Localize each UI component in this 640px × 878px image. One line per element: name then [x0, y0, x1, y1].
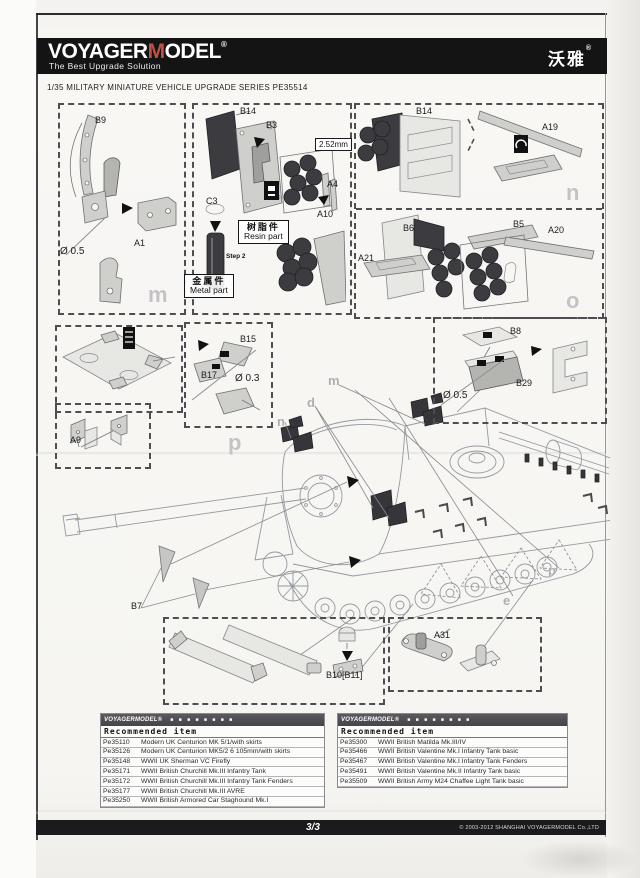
resin-part-en: Resin part — [244, 232, 283, 242]
item-desc: WWII British Armored Car Staghound Mk.I — [139, 796, 324, 806]
assembly-arrow-icon — [531, 346, 542, 356]
tank-ref-letter-m: m — [328, 374, 340, 387]
part-label-b6: B6 — [403, 223, 414, 233]
part-label-a9: A9 — [70, 435, 81, 445]
brand-chinese-text: 沃雅 — [548, 50, 586, 69]
diameter-label: Ø 0.5 — [443, 390, 467, 401]
item-code: Pe35110 — [101, 738, 139, 747]
part-label-c3: C3 — [206, 196, 218, 206]
box-plate-parts — [57, 327, 177, 407]
table-row: Pe35466WWII British Valentine Mk.I Infan… — [338, 747, 567, 757]
item-desc: Modern UK Centurion MK 5/1/with skirts — [139, 738, 324, 747]
registered-mark: ® — [221, 40, 226, 49]
part-label-a1: A1 — [134, 238, 145, 248]
spring-tool-icon — [123, 327, 135, 349]
paper-crease-bottom — [36, 810, 606, 814]
logo-odel: ODEL — [165, 40, 221, 63]
section-letter-n: n — [566, 182, 579, 204]
series-title: 1/35 MILITARY MINIATURE VEHICLE UPGRADE … — [47, 83, 308, 92]
table-brand-cn-blocks: ■ ■ ■ ■ ■ ■ ■ ■ — [170, 717, 234, 723]
item-desc: Modern UK Centurion MK5/2 6 105mm/with s… — [139, 747, 324, 757]
item-desc: WWII British Churchill Mk.III AVRE — [139, 787, 324, 797]
diagram-box-plate — [55, 325, 183, 413]
copyright-text: © 2003-2012 SHANGHAI VOYAGERMODEL Co.,LT… — [459, 825, 599, 831]
item-code: Pe35491 — [338, 767, 376, 777]
table-brand-strip: VOYAGERMODEL® ■ ■ ■ ■ ■ ■ ■ ■ — [101, 714, 324, 726]
item-code: Pe35171 — [101, 767, 139, 777]
logo-voyager: VOYAGER — [48, 40, 148, 63]
item-desc: WWII British Churchill Mk.III Infantry T… — [139, 767, 324, 777]
dimension-label: 2.52mm — [315, 138, 352, 151]
diameter-label: Ø 0.3 — [235, 373, 259, 384]
item-code: Pe35126 — [101, 747, 139, 757]
section-letter-p: p — [228, 432, 241, 454]
item-code: Pe35250 — [101, 796, 139, 806]
section-letter-o: o — [566, 290, 579, 312]
metal-part-label: 金属件 Metal part — [184, 274, 234, 298]
diagram-box-n-o — [354, 103, 604, 319]
box-m-parts — [60, 105, 180, 309]
assembly-arrow-icon — [347, 476, 359, 488]
table-row: Pe35509WWII British Army M24 Chaffee Lig… — [338, 777, 567, 787]
part-label-a4: A4 — [327, 179, 338, 189]
table-row: Pe35126Modern UK Centurion MK5/2 6 105mm… — [101, 747, 324, 757]
page-edge-top — [36, 13, 607, 15]
item-desc: WWII British Valentine Mk.I Infantry Tan… — [376, 757, 567, 767]
diagram-box-b15 — [184, 322, 273, 428]
tank-ref-letter-e: e — [503, 594, 510, 607]
part-label-b14: B14 — [240, 106, 256, 116]
table-title: Recommended item — [101, 726, 324, 738]
part-label-b14-right: B14 — [416, 106, 432, 116]
item-code: Pe35466 — [338, 747, 376, 757]
part-label-b8: B8 — [510, 326, 521, 336]
step-label: Step 2 — [226, 253, 246, 260]
part-label-b3: B3 — [266, 120, 277, 130]
tank-ref-letter-n: n — [277, 415, 285, 428]
table-brand-cn-blocks: ■ ■ ■ ■ ■ ■ ■ ■ — [407, 717, 471, 723]
part-label-b29: B29 — [516, 378, 532, 388]
footer-bar: 3/3 © 2003-2012 SHANGHAI VOYAGERMODEL Co… — [36, 820, 606, 835]
table-row: Pe35300WWII British Matilda Mk.III/IV — [338, 738, 567, 747]
page-edge-left — [36, 13, 38, 840]
table-row: Pe35172WWII British Churchill Mk.III Inf… — [101, 777, 324, 787]
part-label-a10: A10 — [317, 209, 333, 219]
items-table: Pe35300WWII British Matilda Mk.III/IVPe3… — [338, 738, 567, 787]
part-label-b10-b11: B10[B11] — [326, 670, 362, 680]
part-label-b7: B7 — [131, 601, 142, 611]
assembly-arrow-icon — [342, 651, 353, 661]
resin-part-label: 树脂件 Resin part — [238, 220, 289, 244]
page-number: 3/3 — [306, 822, 320, 833]
item-desc: WWII British Valentine Mk.I Infantry Tan… — [376, 747, 567, 757]
part-label-b5: B5 — [513, 219, 524, 229]
assembly-arrow-icon — [122, 203, 133, 214]
tank-gun — [63, 475, 342, 560]
part-label-a21: A21 — [358, 253, 374, 263]
diagram-box-a31 — [388, 617, 542, 692]
tank-ref-letter-p: p — [548, 564, 556, 577]
item-desc: WWII British Churchill Mk.III Infantry T… — [139, 777, 324, 787]
diagram-box-beams — [163, 617, 385, 705]
table-row: Pe35250WWII British Armored Car Staghoun… — [101, 796, 324, 806]
assembly-arrow-icon — [210, 221, 221, 232]
item-code: Pe35300 — [338, 738, 376, 747]
brand-tagline: The Best Upgrade Solution — [49, 61, 161, 71]
assembly-arrow-icon — [349, 556, 361, 568]
header-bar: VOYAGERMODEL® The Best Upgrade Solution … — [37, 38, 607, 74]
table-row: Pe35110Modern UK Centurion MK 5/1/with s… — [101, 738, 324, 747]
table-brand-strip: VOYAGERMODEL® ■ ■ ■ ■ ■ ■ ■ ■ — [338, 714, 567, 726]
table-row: Pe35177WWII British Churchill Mk.III AVR… — [101, 787, 324, 797]
part-label-a31: A31 — [434, 630, 450, 640]
part-label-a19: A19 — [542, 122, 558, 132]
table-row: Pe35171WWII British Churchill Mk.III Inf… — [101, 767, 324, 777]
part-label-b17: B17 — [201, 370, 217, 380]
part-label-b15: B15 — [240, 334, 256, 344]
table-row: Pe35148WWII UK Sherman VC Firefly — [101, 757, 324, 767]
scan-shadow — [520, 840, 640, 878]
recommended-items-table-left: VOYAGERMODEL® ■ ■ ■ ■ ■ ■ ■ ■ Recommende… — [100, 713, 325, 808]
instruction-sheet-page: VOYAGERMODEL® The Best Upgrade Solution … — [0, 0, 640, 878]
item-code: Pe35467 — [338, 757, 376, 767]
item-desc: WWII UK Sherman VC Firefly — [139, 757, 324, 767]
table-brand-logo: VOYAGERMODEL® — [104, 717, 162, 723]
brand-chinese-reg: ® — [586, 45, 591, 52]
section-letter-m: m — [148, 284, 168, 306]
logo-m: M — [148, 40, 165, 63]
part-label-a20: A20 — [548, 225, 564, 235]
brand-chinese: 沃雅® — [548, 45, 591, 70]
table-brand-logo: VOYAGERMODEL® — [341, 717, 399, 723]
scan-margin-left — [0, 0, 36, 878]
box-n-o-parts — [356, 105, 598, 313]
scan-margin-right — [607, 0, 640, 878]
box-beams-parts — [165, 619, 379, 699]
part-label-b9: B9 — [95, 115, 106, 125]
item-desc: WWII British Matilda Mk.III/IV — [376, 738, 567, 747]
items-table: Pe35110Modern UK Centurion MK 5/1/with s… — [101, 738, 324, 807]
item-desc: WWII British Valentine Mk.II Infantry Ta… — [376, 767, 567, 777]
item-code: Pe35177 — [101, 787, 139, 797]
item-desc: WWII British Army M24 Chaffee Light Tank… — [376, 777, 567, 787]
tank-hull — [282, 408, 610, 576]
tank-ref-letter-d: d — [307, 396, 315, 409]
assembly-arrow-icon — [198, 340, 209, 351]
recommended-items-table-right: VOYAGERMODEL® ■ ■ ■ ■ ■ ■ ■ ■ Recommende… — [337, 713, 568, 788]
item-code: Pe35172 — [101, 777, 139, 787]
table-title: Recommended item — [338, 726, 567, 738]
metal-part-en: Metal part — [190, 286, 228, 296]
table-row: Pe35491WWII British Valentine Mk.II Infa… — [338, 767, 567, 777]
box-a31-parts — [390, 619, 536, 686]
item-code: Pe35148 — [101, 757, 139, 767]
box-a9-parts — [57, 405, 145, 463]
diameter-label: Ø 0.5 — [60, 246, 84, 257]
item-code: Pe35509 — [338, 777, 376, 787]
table-row: Pe35467WWII British Valentine Mk.I Infan… — [338, 757, 567, 767]
